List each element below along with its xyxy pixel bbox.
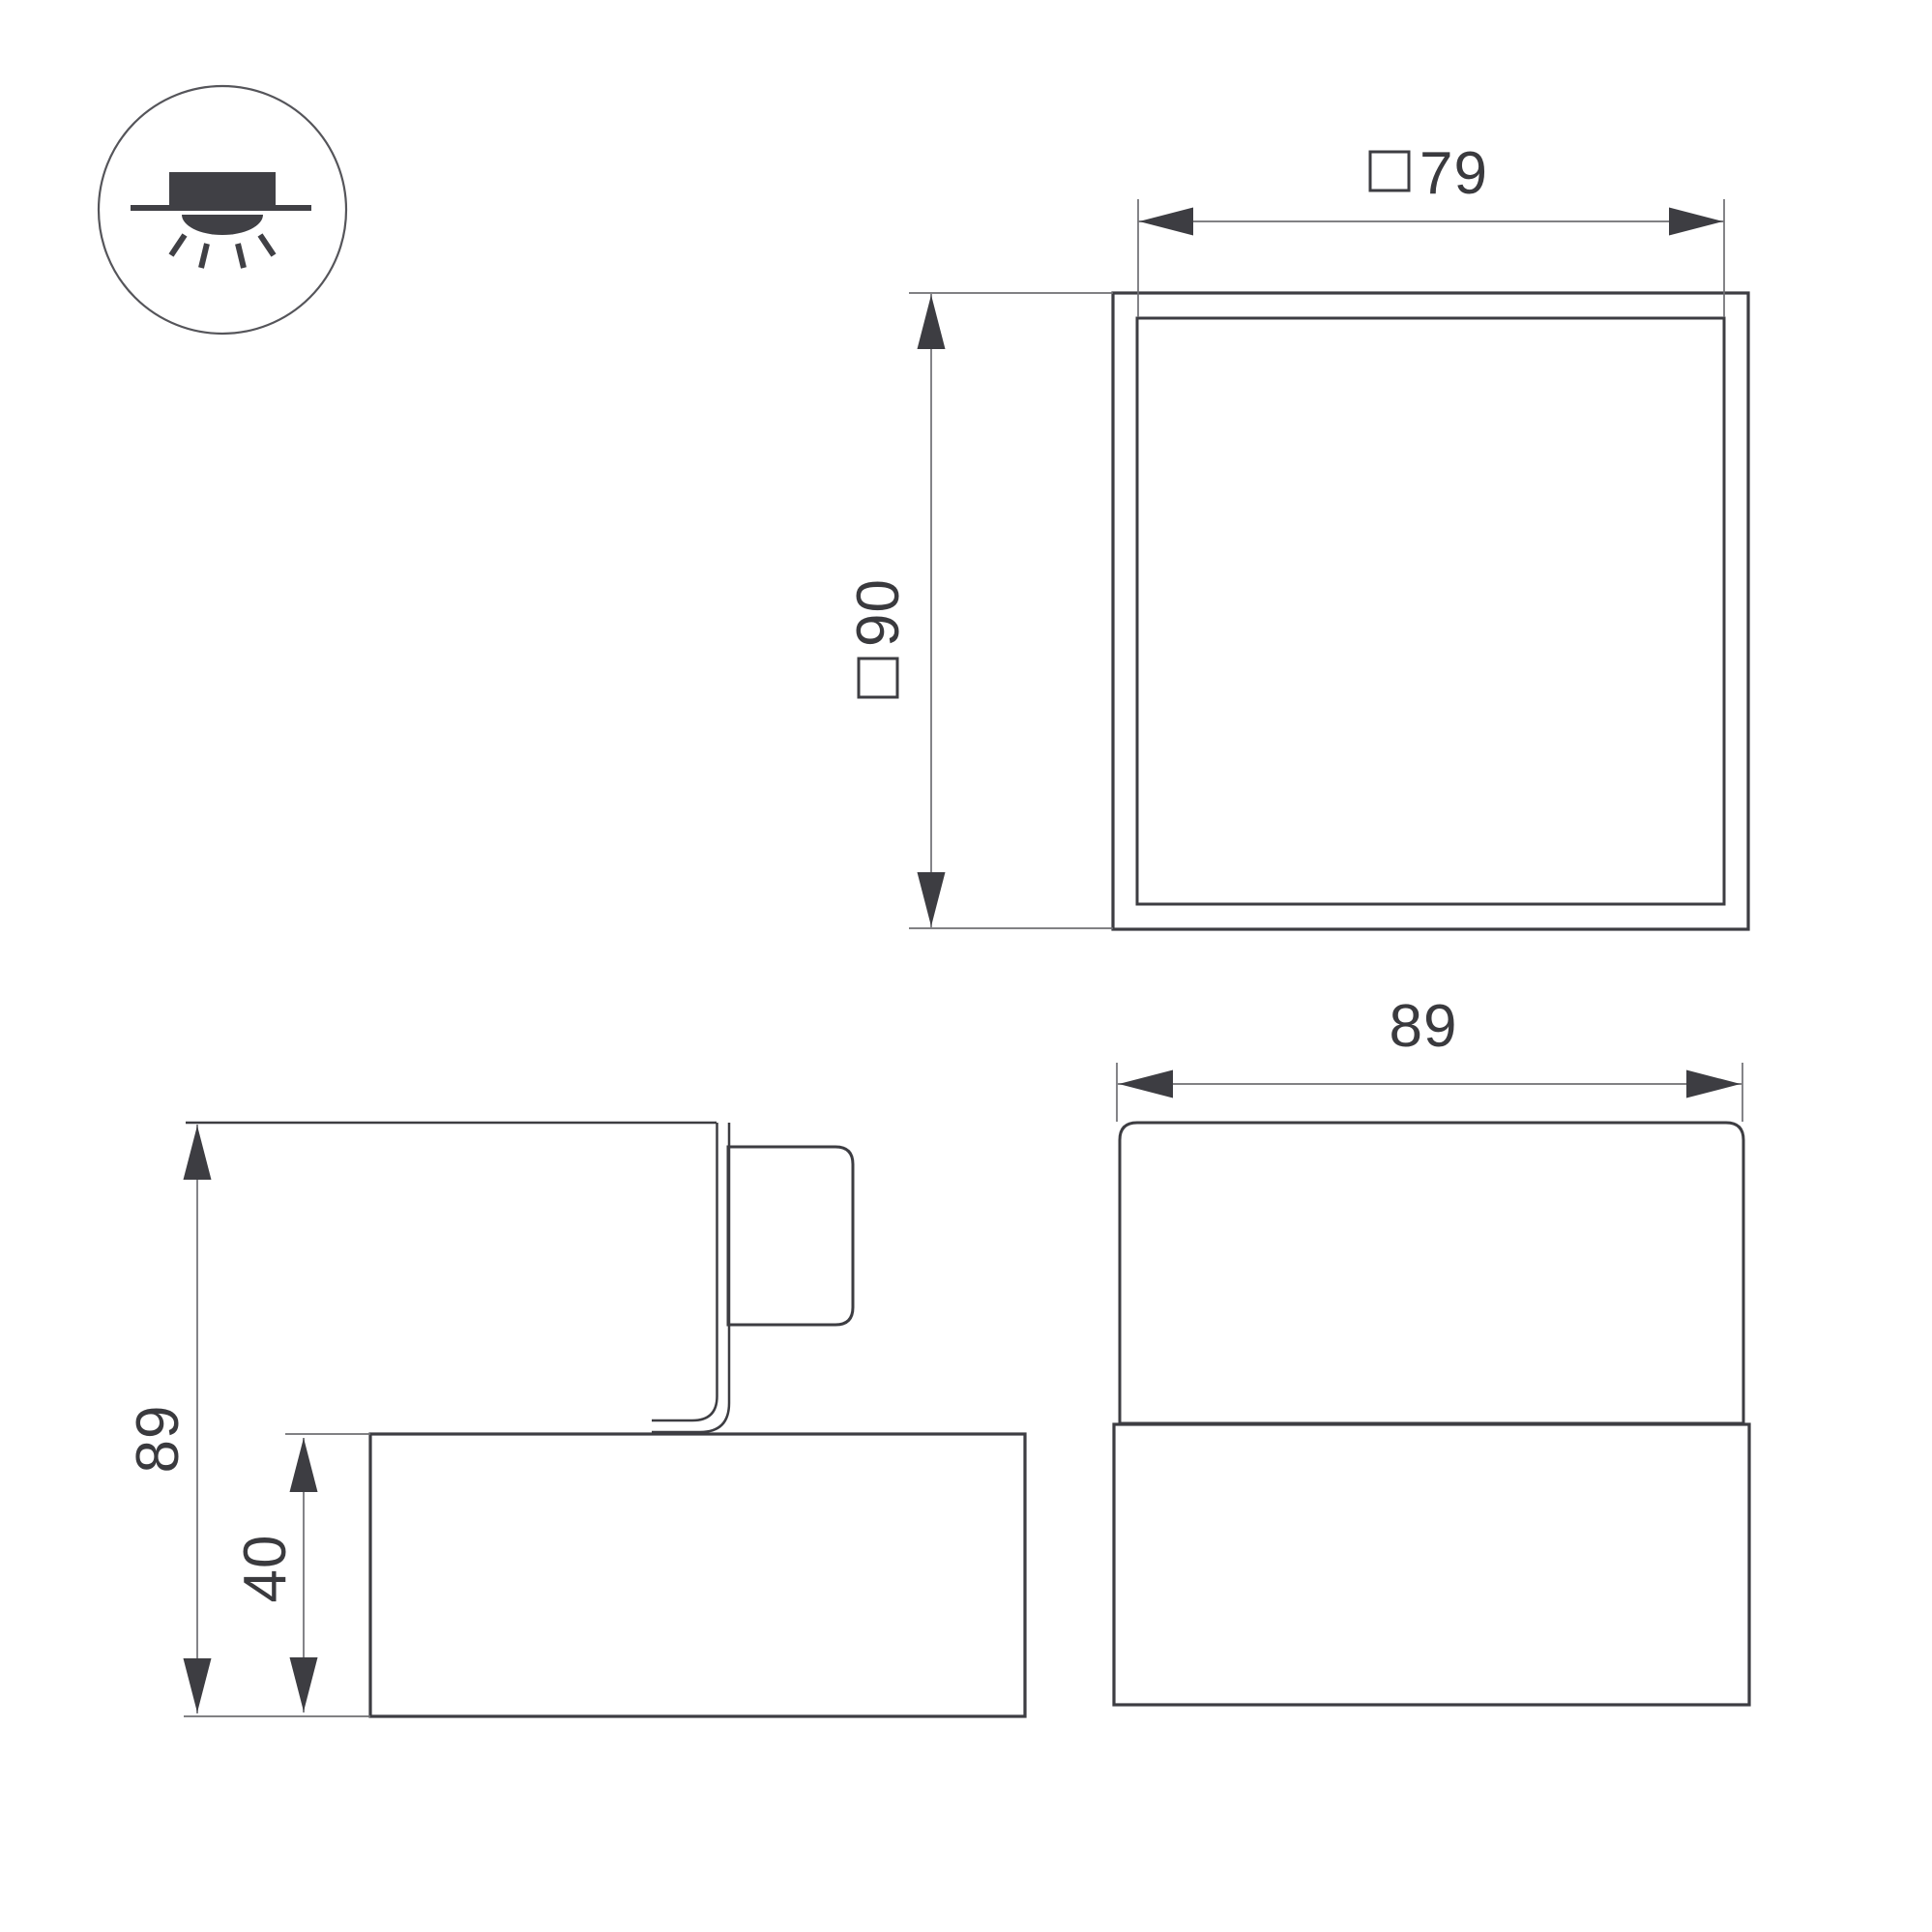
surface-downlight-icon [99, 86, 346, 334]
icon-fixture-body [169, 172, 276, 205]
arrow-down-icon [184, 1658, 212, 1712]
arrow-right-icon [1686, 1070, 1741, 1098]
dimension-label: 40 [232, 1535, 299, 1603]
bracket-plate-inner-line [652, 1123, 717, 1420]
dimension-base-height: 40 [232, 1438, 318, 1712]
technical-drawing: 79 90 89 [0, 0, 1932, 1932]
dimension-top-height: 90 [845, 293, 1113, 928]
arrow-right-icon [1669, 208, 1723, 236]
dimension-top-width: 79 [1138, 140, 1724, 317]
dimension-label-group: 40 [232, 1535, 299, 1603]
top-view-inner-square [1137, 318, 1724, 904]
arrow-left-icon [1139, 208, 1193, 236]
icon-light-rays [171, 235, 274, 268]
dimension-label-group: 89 [125, 1405, 191, 1474]
dimension-front-width: 89 [1117, 993, 1742, 1122]
ray-icon [171, 235, 185, 255]
arrow-up-icon [918, 295, 946, 349]
arrow-up-icon [184, 1126, 212, 1180]
front-view-shade [1120, 1123, 1743, 1423]
arrow-down-icon [290, 1657, 318, 1712]
arrow-up-icon [290, 1438, 318, 1492]
drawing-canvas: 79 90 89 [0, 0, 1932, 1932]
dimension-label-group: 90 [845, 578, 912, 697]
side-view-base [370, 1434, 1025, 1716]
square-dim-symbol [1370, 152, 1409, 190]
dimension-label: 89 [125, 1405, 191, 1474]
bracket-driver-box [728, 1147, 853, 1325]
arrow-down-icon [918, 872, 946, 926]
dimension-side-height: 89 [125, 1125, 370, 1716]
ray-icon [238, 244, 244, 268]
arrow-left-icon [1119, 1070, 1173, 1098]
top-view: 79 90 [845, 140, 1748, 929]
dimension-label: 89 [1390, 993, 1458, 1060]
top-view-outer-square [1113, 293, 1748, 929]
ray-icon [260, 235, 274, 255]
dimension-label: 79 [1420, 140, 1488, 207]
dimension-label: 90 [845, 578, 912, 647]
icon-light-dome [182, 215, 263, 235]
side-view: 89 40 [125, 1123, 1025, 1716]
square-dim-symbol [859, 659, 897, 697]
ray-icon [201, 244, 207, 268]
front-view-base [1114, 1424, 1749, 1705]
front-view: 89 [1114, 993, 1749, 1705]
